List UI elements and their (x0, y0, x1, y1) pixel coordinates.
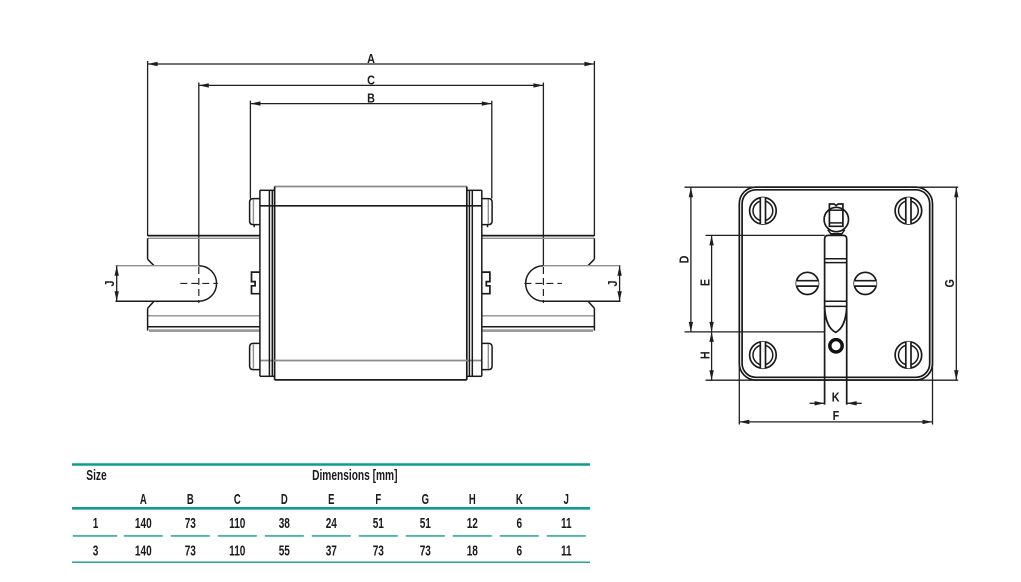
svg-text:Dimensions [mm]: Dimensions [mm] (312, 466, 397, 484)
svg-text:B: B (367, 91, 375, 106)
svg-text:E: E (328, 491, 334, 508)
svg-text:55: 55 (279, 542, 290, 558)
svg-text:G: G (422, 491, 430, 508)
svg-text:J: J (102, 281, 117, 287)
svg-text:37: 37 (326, 542, 337, 558)
svg-text:140: 140 (135, 542, 152, 558)
svg-text:140: 140 (135, 515, 152, 531)
svg-text:38: 38 (279, 515, 290, 531)
svg-text:73: 73 (185, 515, 196, 531)
svg-text:C: C (367, 72, 375, 87)
svg-text:11: 11 (561, 515, 572, 531)
svg-text:C: C (234, 491, 241, 508)
svg-text:D: D (677, 255, 692, 263)
svg-text:F: F (833, 408, 840, 423)
svg-text:A: A (140, 491, 147, 508)
svg-text:G: G (942, 279, 957, 287)
svg-text:3: 3 (93, 542, 99, 558)
svg-text:J: J (564, 491, 569, 508)
svg-text:1: 1 (93, 515, 99, 531)
svg-text:D: D (281, 491, 288, 508)
svg-text:H: H (697, 351, 712, 359)
svg-text:A: A (367, 51, 375, 66)
svg-text:51: 51 (420, 515, 431, 531)
svg-text:F: F (375, 491, 381, 508)
svg-text:K: K (832, 390, 840, 405)
svg-text:73: 73 (373, 542, 384, 558)
svg-text:110: 110 (229, 515, 245, 531)
svg-text:73: 73 (185, 542, 196, 558)
svg-text:K: K (516, 491, 523, 508)
svg-text:51: 51 (373, 515, 384, 531)
svg-text:18: 18 (467, 542, 478, 558)
svg-text:6: 6 (517, 515, 523, 531)
svg-text:B: B (187, 491, 194, 508)
svg-text:24: 24 (326, 515, 337, 531)
svg-text:Size: Size (86, 466, 106, 484)
svg-text:12: 12 (467, 515, 478, 531)
svg-text:6: 6 (517, 542, 523, 558)
svg-text:11: 11 (561, 542, 572, 558)
svg-text:J: J (605, 281, 620, 287)
svg-text:H: H (469, 491, 476, 508)
svg-text:73: 73 (420, 542, 431, 558)
svg-text:E: E (697, 279, 712, 286)
svg-text:110: 110 (229, 542, 245, 558)
